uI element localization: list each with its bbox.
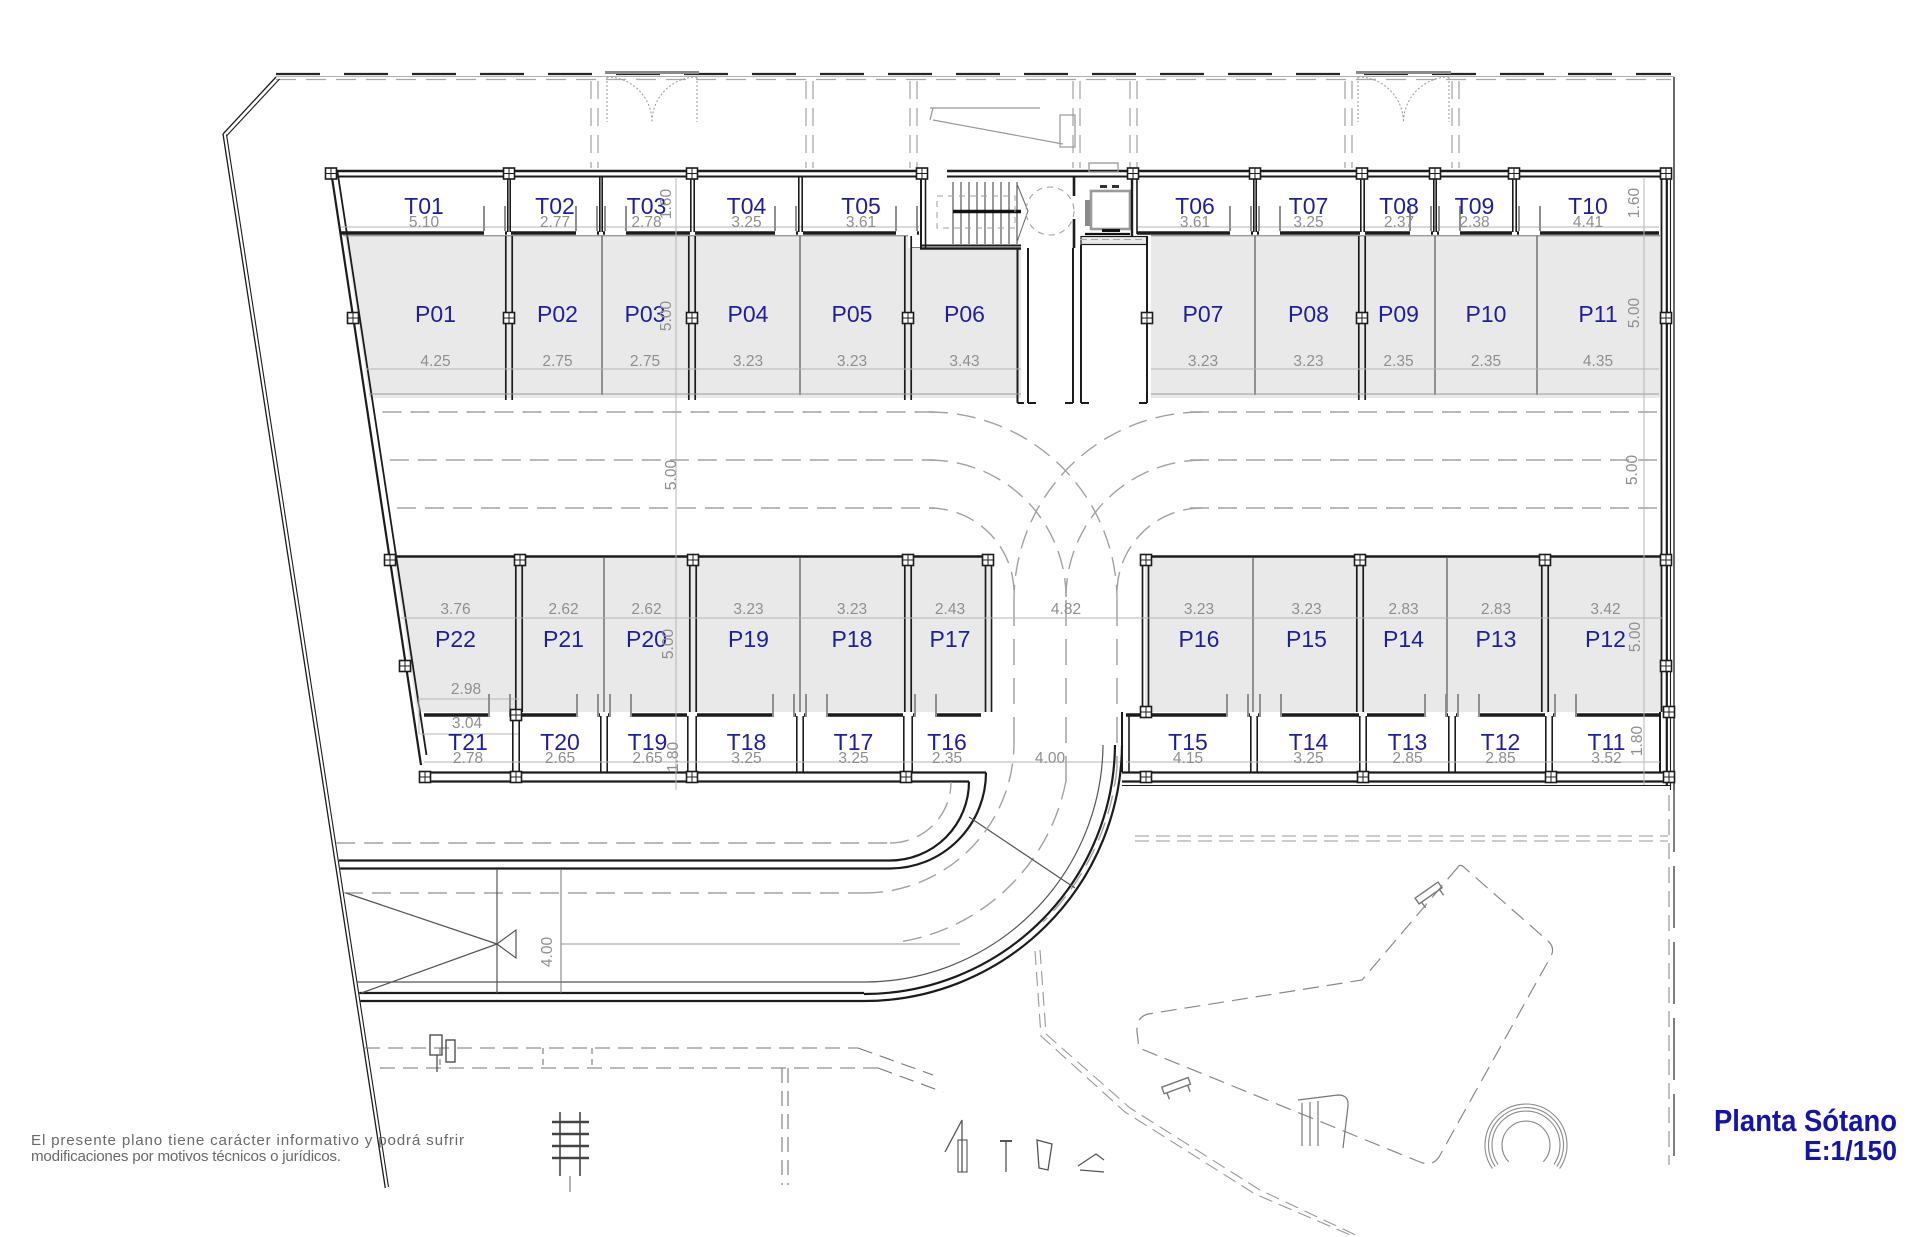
svg-text:P22: P22 [435,626,476,652]
svg-text:P02: P02 [537,301,578,327]
svg-text:2.37: 2.37 [1384,214,1414,231]
svg-text:3.61: 3.61 [846,214,876,231]
svg-text:P08: P08 [1288,301,1329,327]
svg-text:3.23: 3.23 [1291,601,1321,618]
svg-text:3.25: 3.25 [1293,750,1323,767]
svg-text:P17: P17 [930,626,971,652]
svg-text:5.00: 5.00 [1626,298,1643,329]
svg-text:P06: P06 [944,301,985,327]
svg-text:3.25: 3.25 [731,214,761,231]
svg-text:3.23: 3.23 [1293,353,1323,370]
svg-text:2.75: 2.75 [542,353,572,370]
svg-text:P05: P05 [832,301,873,327]
svg-text:2.65: 2.65 [545,750,575,767]
svg-text:El presente plano tiene caráct: El presente plano tiene carácter informa… [31,1132,464,1149]
svg-text:3.23: 3.23 [837,353,867,370]
svg-text:3.42: 3.42 [1590,601,1620,618]
svg-text:3.76: 3.76 [440,601,470,618]
svg-text:3.23: 3.23 [733,601,763,618]
svg-text:3.61: 3.61 [1180,214,1210,231]
svg-text:4.82: 4.82 [1051,601,1081,618]
svg-text:2.65: 2.65 [632,750,662,767]
svg-text:3.25: 3.25 [838,750,868,767]
svg-text:1.60: 1.60 [658,189,675,220]
svg-text:4.25: 4.25 [420,353,450,370]
svg-text:3.25: 3.25 [731,750,761,767]
svg-text:2.83: 2.83 [1481,601,1511,618]
svg-text:3.23: 3.23 [837,601,867,618]
svg-text:P21: P21 [543,626,584,652]
svg-text:P07: P07 [1183,301,1224,327]
svg-text:2.77: 2.77 [540,214,570,231]
svg-text:1.80: 1.80 [1629,726,1646,757]
svg-text:2.38: 2.38 [1459,214,1489,231]
svg-text:modificaciones por motivos téc: modificaciones por motivos técnicos o ju… [31,1148,341,1165]
svg-text:4.41: 4.41 [1573,214,1603,231]
svg-text:5.00: 5.00 [1627,622,1644,653]
svg-text:P01: P01 [415,301,456,327]
svg-text:P11: P11 [1578,301,1617,327]
svg-text:2.35: 2.35 [1383,353,1413,370]
svg-text:1.80: 1.80 [665,742,682,773]
svg-text:5.00: 5.00 [1624,455,1641,486]
svg-text:2.78: 2.78 [453,750,483,767]
svg-text:2.43: 2.43 [935,601,965,618]
svg-text:P14: P14 [1383,626,1424,652]
svg-text:2.85: 2.85 [1392,750,1422,767]
svg-text:P18: P18 [832,626,873,652]
svg-text:4.00: 4.00 [539,937,556,968]
svg-text:2.35: 2.35 [932,750,962,767]
svg-text:2.98: 2.98 [451,681,481,698]
svg-text:Planta Sótano: Planta Sótano [1714,1103,1897,1138]
svg-text:P19: P19 [728,626,769,652]
svg-text:3.52: 3.52 [1591,750,1621,767]
svg-text:5.00: 5.00 [663,460,680,491]
svg-text:P04: P04 [728,301,769,327]
svg-text:3.23: 3.23 [1184,601,1214,618]
svg-text:P10: P10 [1466,301,1507,327]
svg-text:4.35: 4.35 [1583,353,1613,370]
svg-text:3.43: 3.43 [949,353,979,370]
svg-text:3.23: 3.23 [733,353,763,370]
svg-text:2.85: 2.85 [1485,750,1515,767]
svg-text:2.75: 2.75 [630,353,660,370]
svg-text:P13: P13 [1476,626,1517,652]
svg-text:P15: P15 [1286,626,1327,652]
svg-text:P09: P09 [1378,301,1419,327]
svg-text:4.00: 4.00 [1035,750,1066,767]
svg-text:2.35: 2.35 [1471,353,1501,370]
svg-text:2.62: 2.62 [548,601,578,618]
svg-text:P12: P12 [1585,626,1626,652]
svg-text:2.83: 2.83 [1388,601,1418,618]
svg-text:E:1/150: E:1/150 [1804,1135,1897,1166]
svg-text:3.25: 3.25 [1293,214,1323,231]
svg-text:1.60: 1.60 [1626,188,1643,219]
svg-text:5.00: 5.00 [658,301,675,332]
svg-text:4.15: 4.15 [1173,750,1203,767]
svg-text:2.62: 2.62 [631,601,661,618]
svg-text:5.10: 5.10 [409,214,440,231]
svg-text:3.23: 3.23 [1188,353,1218,370]
svg-text:P16: P16 [1179,626,1220,652]
svg-text:5.00: 5.00 [660,629,677,660]
